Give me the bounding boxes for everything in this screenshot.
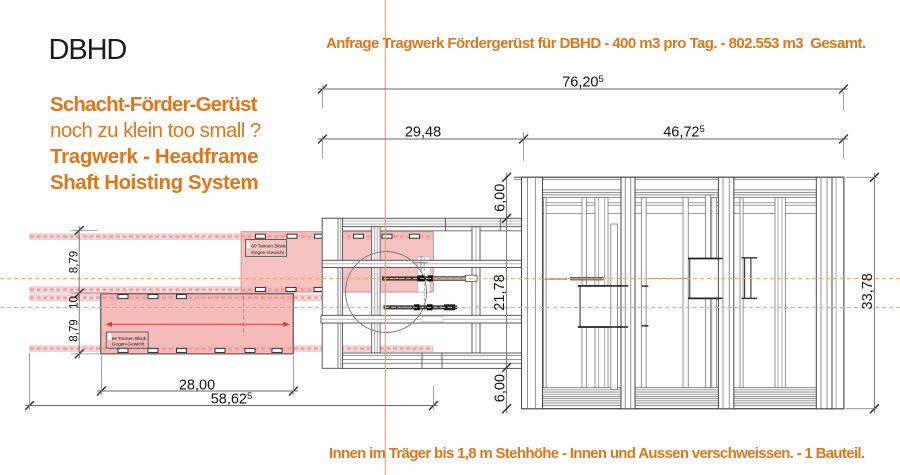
svg-text:6,00: 6,00 <box>492 374 508 402</box>
svg-text:76,205: 76,205 <box>562 74 604 90</box>
svg-text:10: 10 <box>68 296 80 309</box>
svg-text:Gegen-Gewicht: Gegen-Gewicht <box>251 250 284 256</box>
svg-text:Shaft Hoisting System: Shaft Hoisting System <box>50 171 258 194</box>
svg-text:46,725: 46,725 <box>663 124 705 140</box>
svg-text:6,00: 6,00 <box>492 184 508 212</box>
svg-text:28,00: 28,00 <box>179 378 215 394</box>
svg-text:Anfrage Tragwerk Fördergerüst: Anfrage Tragwerk Fördergerüst für DBHD -… <box>326 35 866 52</box>
svg-text:Innen im Träger bis 1,8 m Steh: Innen im Träger bis 1,8 m Stehhöhe - Inn… <box>329 445 865 462</box>
svg-text:29,48: 29,48 <box>405 125 441 141</box>
svg-text:60 Tonnen Block: 60 Tonnen Block <box>112 336 147 342</box>
svg-text:Tragwerk - Headframe: Tragwerk - Headframe <box>50 145 258 168</box>
svg-text:58,625: 58,625 <box>211 391 253 407</box>
svg-text:21,78: 21,78 <box>492 274 508 310</box>
svg-text:DBHD: DBHD <box>49 34 127 66</box>
svg-text:60 Tonnen Block: 60 Tonnen Block <box>251 243 286 249</box>
svg-text:Schacht-Förder-Gerüst: Schacht-Förder-Gerüst <box>50 93 258 116</box>
svg-text:Gegen-Gewicht: Gegen-Gewicht <box>112 342 145 348</box>
svg-text:8,79: 8,79 <box>68 319 80 341</box>
svg-text:33,78: 33,78 <box>860 273 876 309</box>
svg-text:noch zu klein too small ?: noch zu klein too small ? <box>50 119 261 142</box>
svg-text:8,79: 8,79 <box>68 251 80 273</box>
